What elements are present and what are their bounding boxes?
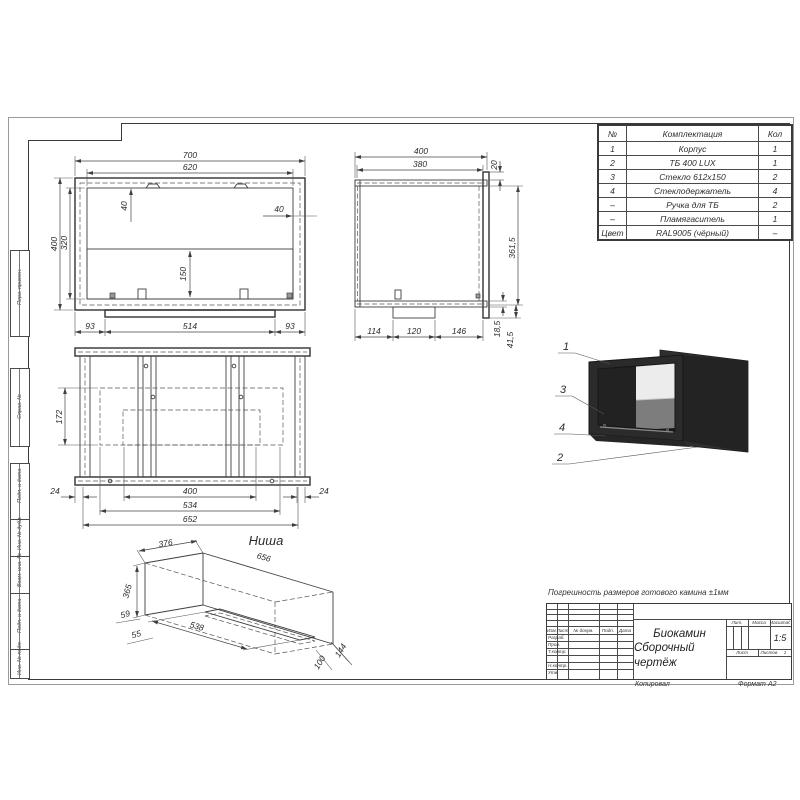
dim-146: 146 [452,326,466,336]
front-view: 700 620 400 320 40 40 150 [49,150,317,336]
dim-100: 100 [311,654,327,672]
part-num: 1 [598,142,627,156]
row-nkontr: Н.контр. [547,662,569,669]
part-qty: 2 [759,198,793,212]
callout-3: 3 [560,384,567,396]
table-row: – Пламягаситель 1 [598,212,792,226]
dim-320: 320 [59,236,69,250]
row-utv: Утв. [547,669,569,676]
dim-41-5: 41,5 [505,331,515,348]
assembled-3d-view: 1 3 4 2 [552,341,748,464]
callout-2: 2 [556,452,563,464]
part-qty: 1 [759,212,793,226]
callout-4: 4 [559,422,565,434]
part-qty: 1 [759,156,793,170]
part-num: 4 [598,184,627,198]
top-view: 172 24 24 400 534 652 Ниша [49,348,329,548]
dim-400: 400 [49,237,59,251]
dim-365: 365 [120,583,133,600]
part-name: Стеклодержатель [627,184,759,198]
part-qty: – [759,226,793,241]
col-header-qty: Кол [759,125,793,142]
scale-value: 1:5 [770,627,790,648]
format-label: Формат [738,681,766,688]
interior-left-wall [598,367,636,428]
table-row: 3 Стекло 612х150 2 [598,170,792,184]
dim-93-left: 93 [85,321,95,331]
table-row: 4 Стеклодержатель 4 [598,184,792,198]
doc-title-line2: Сборочный чертёж [634,641,725,670]
dim-24-left: 24 [49,486,60,496]
col-header-num: № [598,125,627,142]
lit-label: Лит. [726,619,748,626]
right-side [683,355,748,452]
glass-panel [636,398,675,430]
dim-400-side: 400 [414,146,428,156]
document-title: Биокамин Сборочный чертёж [634,620,725,677]
hdr-date: Дата [617,626,633,634]
through-opening [636,363,675,400]
sheets-label: Листов [758,649,780,656]
mass-label: Масса [748,619,770,626]
part-name: Корпус [627,142,759,156]
table-row: – Ручка для ТБ 2 [598,198,792,212]
sheets-value: 1 [780,649,790,656]
part-qty: 4 [759,184,793,198]
row-razrab: Разраб. [547,634,569,641]
parts-table-header: № Комплектация Кол [598,125,792,142]
part-qty: 2 [759,170,793,184]
title-block: Изм. Лист № докум. Подп. Дата Разраб. Пр… [546,603,792,680]
row-tkontr: Т.контр. [547,648,569,655]
dim-172: 172 [54,410,64,424]
part-qty: 1 [759,142,793,156]
dim-150: 150 [178,267,188,281]
callout-1: 1 [563,341,569,353]
tolerance-note: Погрешность размеров готового камина ±1м… [548,588,729,597]
dim-114: 114 [367,326,381,336]
table-row: 2 ТБ 400 LUX 1 [598,156,792,170]
part-name: RAL9005 (чёрный) [627,226,759,241]
dim-120: 120 [407,326,421,336]
dim-652: 652 [183,514,197,524]
side-view: 400 380 20 361,5 18,5 41,5 [355,146,523,348]
format-value: А2 [768,681,777,688]
dim-400-top: 400 [183,486,197,496]
copied-label: Копировал [635,681,670,688]
part-num: Цвет [598,226,627,241]
dim-59: 59 [119,608,131,620]
part-name: Пламягаситель [627,212,759,226]
doc-title-line1: Биокамин [653,627,706,641]
drawing-sheet: Перв. примен. Справ. № Подп. и дата Инв.… [0,0,800,800]
dim-24-right: 24 [318,486,329,496]
dim-40-right: 40 [274,204,284,214]
hdr-sign: Подп. [599,626,617,634]
dim-700: 700 [183,150,197,160]
part-num: 3 [598,170,627,184]
part-name: ТБ 400 LUX [627,156,759,170]
dim-538: 538 [189,619,206,633]
table-row: 1 Корпус 1 [598,142,792,156]
part-name: Стекло 612х150 [627,170,759,184]
col-header-name: Комплектация [627,125,759,142]
dim-55: 55 [130,628,142,640]
part-num: 2 [598,156,627,170]
dim-40-top: 40 [119,201,129,211]
dim-376: 376 [158,537,174,549]
niche-view-label: Ниша [249,533,284,548]
part-name: Ручка для ТБ [627,198,759,212]
dim-656: 656 [256,550,273,564]
dim-534: 534 [183,500,197,510]
dim-144: 144 [332,642,348,660]
hdr-doc: № докум. [568,626,599,634]
dim-18-5: 18,5 [492,320,502,337]
sheet-label: Лист [726,649,758,656]
drawing-views: .ln{stroke:#3f3f3f;stroke-width:1.5;fill… [0,0,800,800]
scale-label: Масштаб [770,619,790,626]
part-num: – [598,212,627,226]
parts-table: № Комплектация Кол 1 Корпус 1 2 ТБ 400 L… [597,124,793,241]
dim-93-right: 93 [285,321,295,331]
hdr-izm: Изм. [547,626,557,634]
dim-620: 620 [183,162,197,172]
row-prov: Пров. [547,641,569,648]
dim-361-5: 361,5 [507,237,517,259]
dim-20: 20 [489,160,499,171]
dim-514: 514 [183,321,197,331]
part-num: – [598,198,627,212]
dim-380: 380 [413,159,427,169]
niche-isometric-view: 376 656 365 59 55 538 100 144 [116,537,352,671]
table-row: Цвет RAL9005 (чёрный) – [598,226,792,241]
hdr-list: Лист [557,626,568,634]
